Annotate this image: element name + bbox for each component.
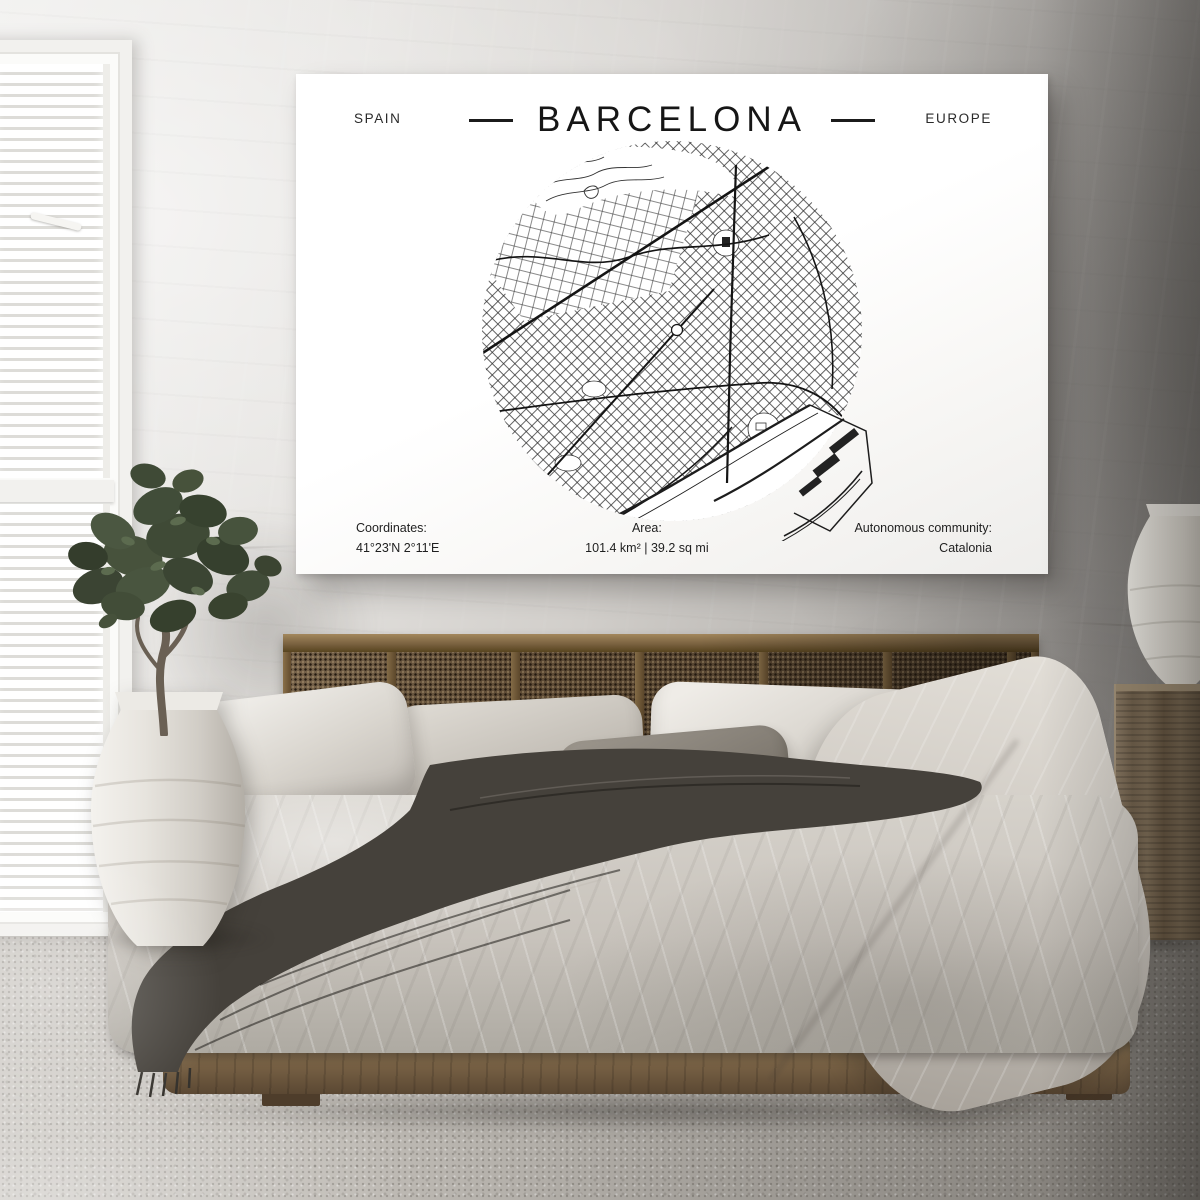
plant-foliage (66, 460, 284, 639)
community-label: Autonomous community: (854, 519, 992, 538)
barcelona-map-icon (464, 131, 884, 541)
bedroom-scene: SPAIN BARCELONA EUROPE (0, 0, 1200, 1200)
area-value: 101.4 km² | 39.2 sq mi (585, 539, 708, 558)
white-vase (1124, 498, 1200, 698)
pedestal-top-face (1116, 684, 1200, 691)
throw-fringe (137, 1068, 190, 1097)
continent-label: EUROPE (925, 111, 992, 126)
coordinates-block: Coordinates: 41°23'N 2°11'E (356, 519, 439, 558)
potted-tree (38, 436, 302, 736)
community-value: Catalonia (854, 539, 992, 558)
window-shutter-upper (0, 64, 110, 478)
community-block: Autonomous community: Catalonia (854, 519, 992, 558)
poster-footer: Coordinates: 41°23'N 2°11'E Area: 101.4 … (356, 519, 992, 558)
coordinates-label: Coordinates: (356, 519, 439, 538)
map-grid (464, 131, 884, 541)
coordinates-value: 41°23'N 2°11'E (356, 539, 439, 558)
wall-art-poster: SPAIN BARCELONA EUROPE (296, 74, 1048, 574)
title-dash-left (469, 119, 513, 122)
area-label: Area: (585, 519, 708, 538)
title-dash-right (831, 119, 875, 122)
area-block: Area: 101.4 km² | 39.2 sq mi (585, 519, 708, 558)
